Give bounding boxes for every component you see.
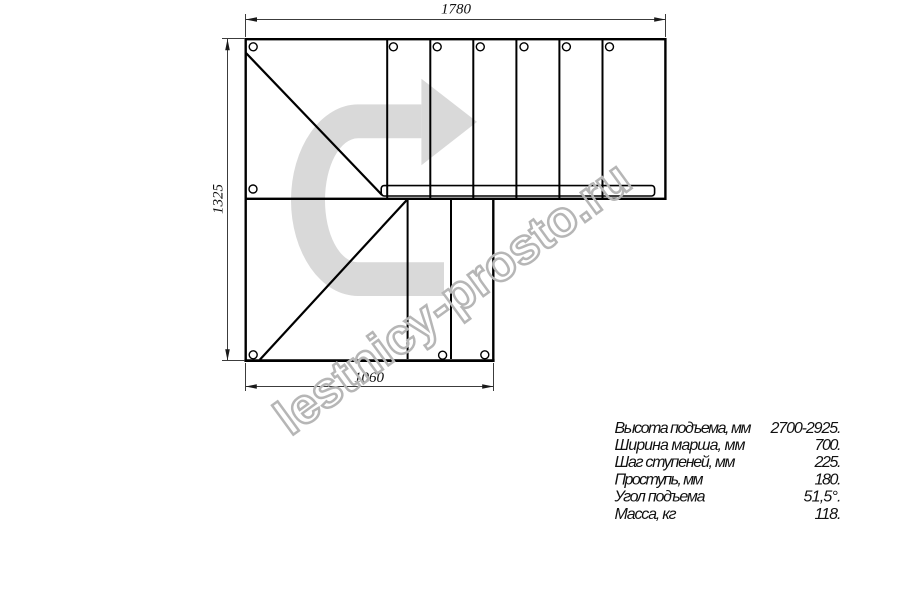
svg-text:2700-2925.: 2700-2925. xyxy=(770,420,842,437)
svg-text:180.: 180. xyxy=(815,471,842,488)
svg-text:Угол подъема: Угол подъема xyxy=(614,489,706,506)
svg-text:700.: 700. xyxy=(815,437,842,454)
svg-text:51,5°.: 51,5°. xyxy=(804,489,842,506)
svg-text:1780: 1780 xyxy=(441,2,472,18)
svg-text:Проступь, мм: Проступь, мм xyxy=(615,471,704,488)
svg-text:1325: 1325 xyxy=(210,184,226,215)
svg-text:Масса, кг: Масса, кг xyxy=(615,506,677,523)
svg-text:Ширина марша, мм: Ширина марша, мм xyxy=(615,437,746,454)
svg-text:Высота подъема, мм: Высота подъема, мм xyxy=(615,420,752,437)
svg-text:225.: 225. xyxy=(814,454,842,471)
svg-text:118.: 118. xyxy=(815,506,842,523)
svg-text:Шаг ступеней, мм: Шаг ступеней, мм xyxy=(615,454,736,471)
